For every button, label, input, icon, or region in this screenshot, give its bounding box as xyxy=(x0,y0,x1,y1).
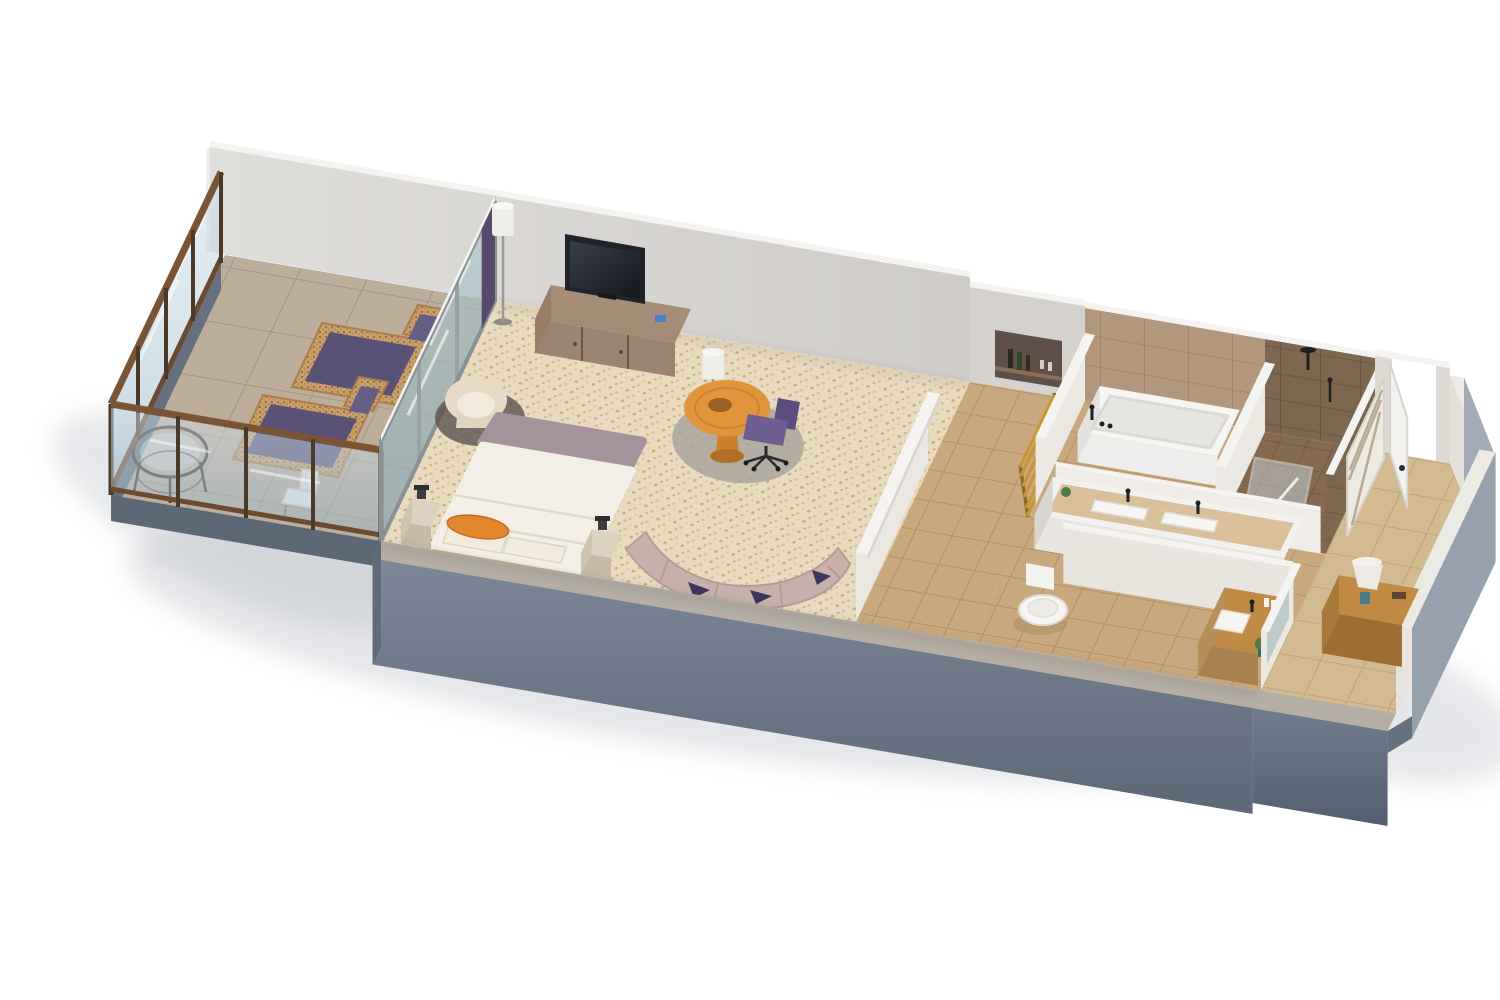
floor-plan-stage xyxy=(0,0,1500,1000)
door-handle xyxy=(1399,465,1405,471)
outer-wall-end xyxy=(373,541,381,665)
amenity-bottles xyxy=(1264,598,1269,607)
floor-plan-render xyxy=(0,0,1500,1000)
console-decor xyxy=(1392,592,1406,599)
alarm-clock xyxy=(655,315,666,322)
vanity-plant xyxy=(1061,487,1071,497)
